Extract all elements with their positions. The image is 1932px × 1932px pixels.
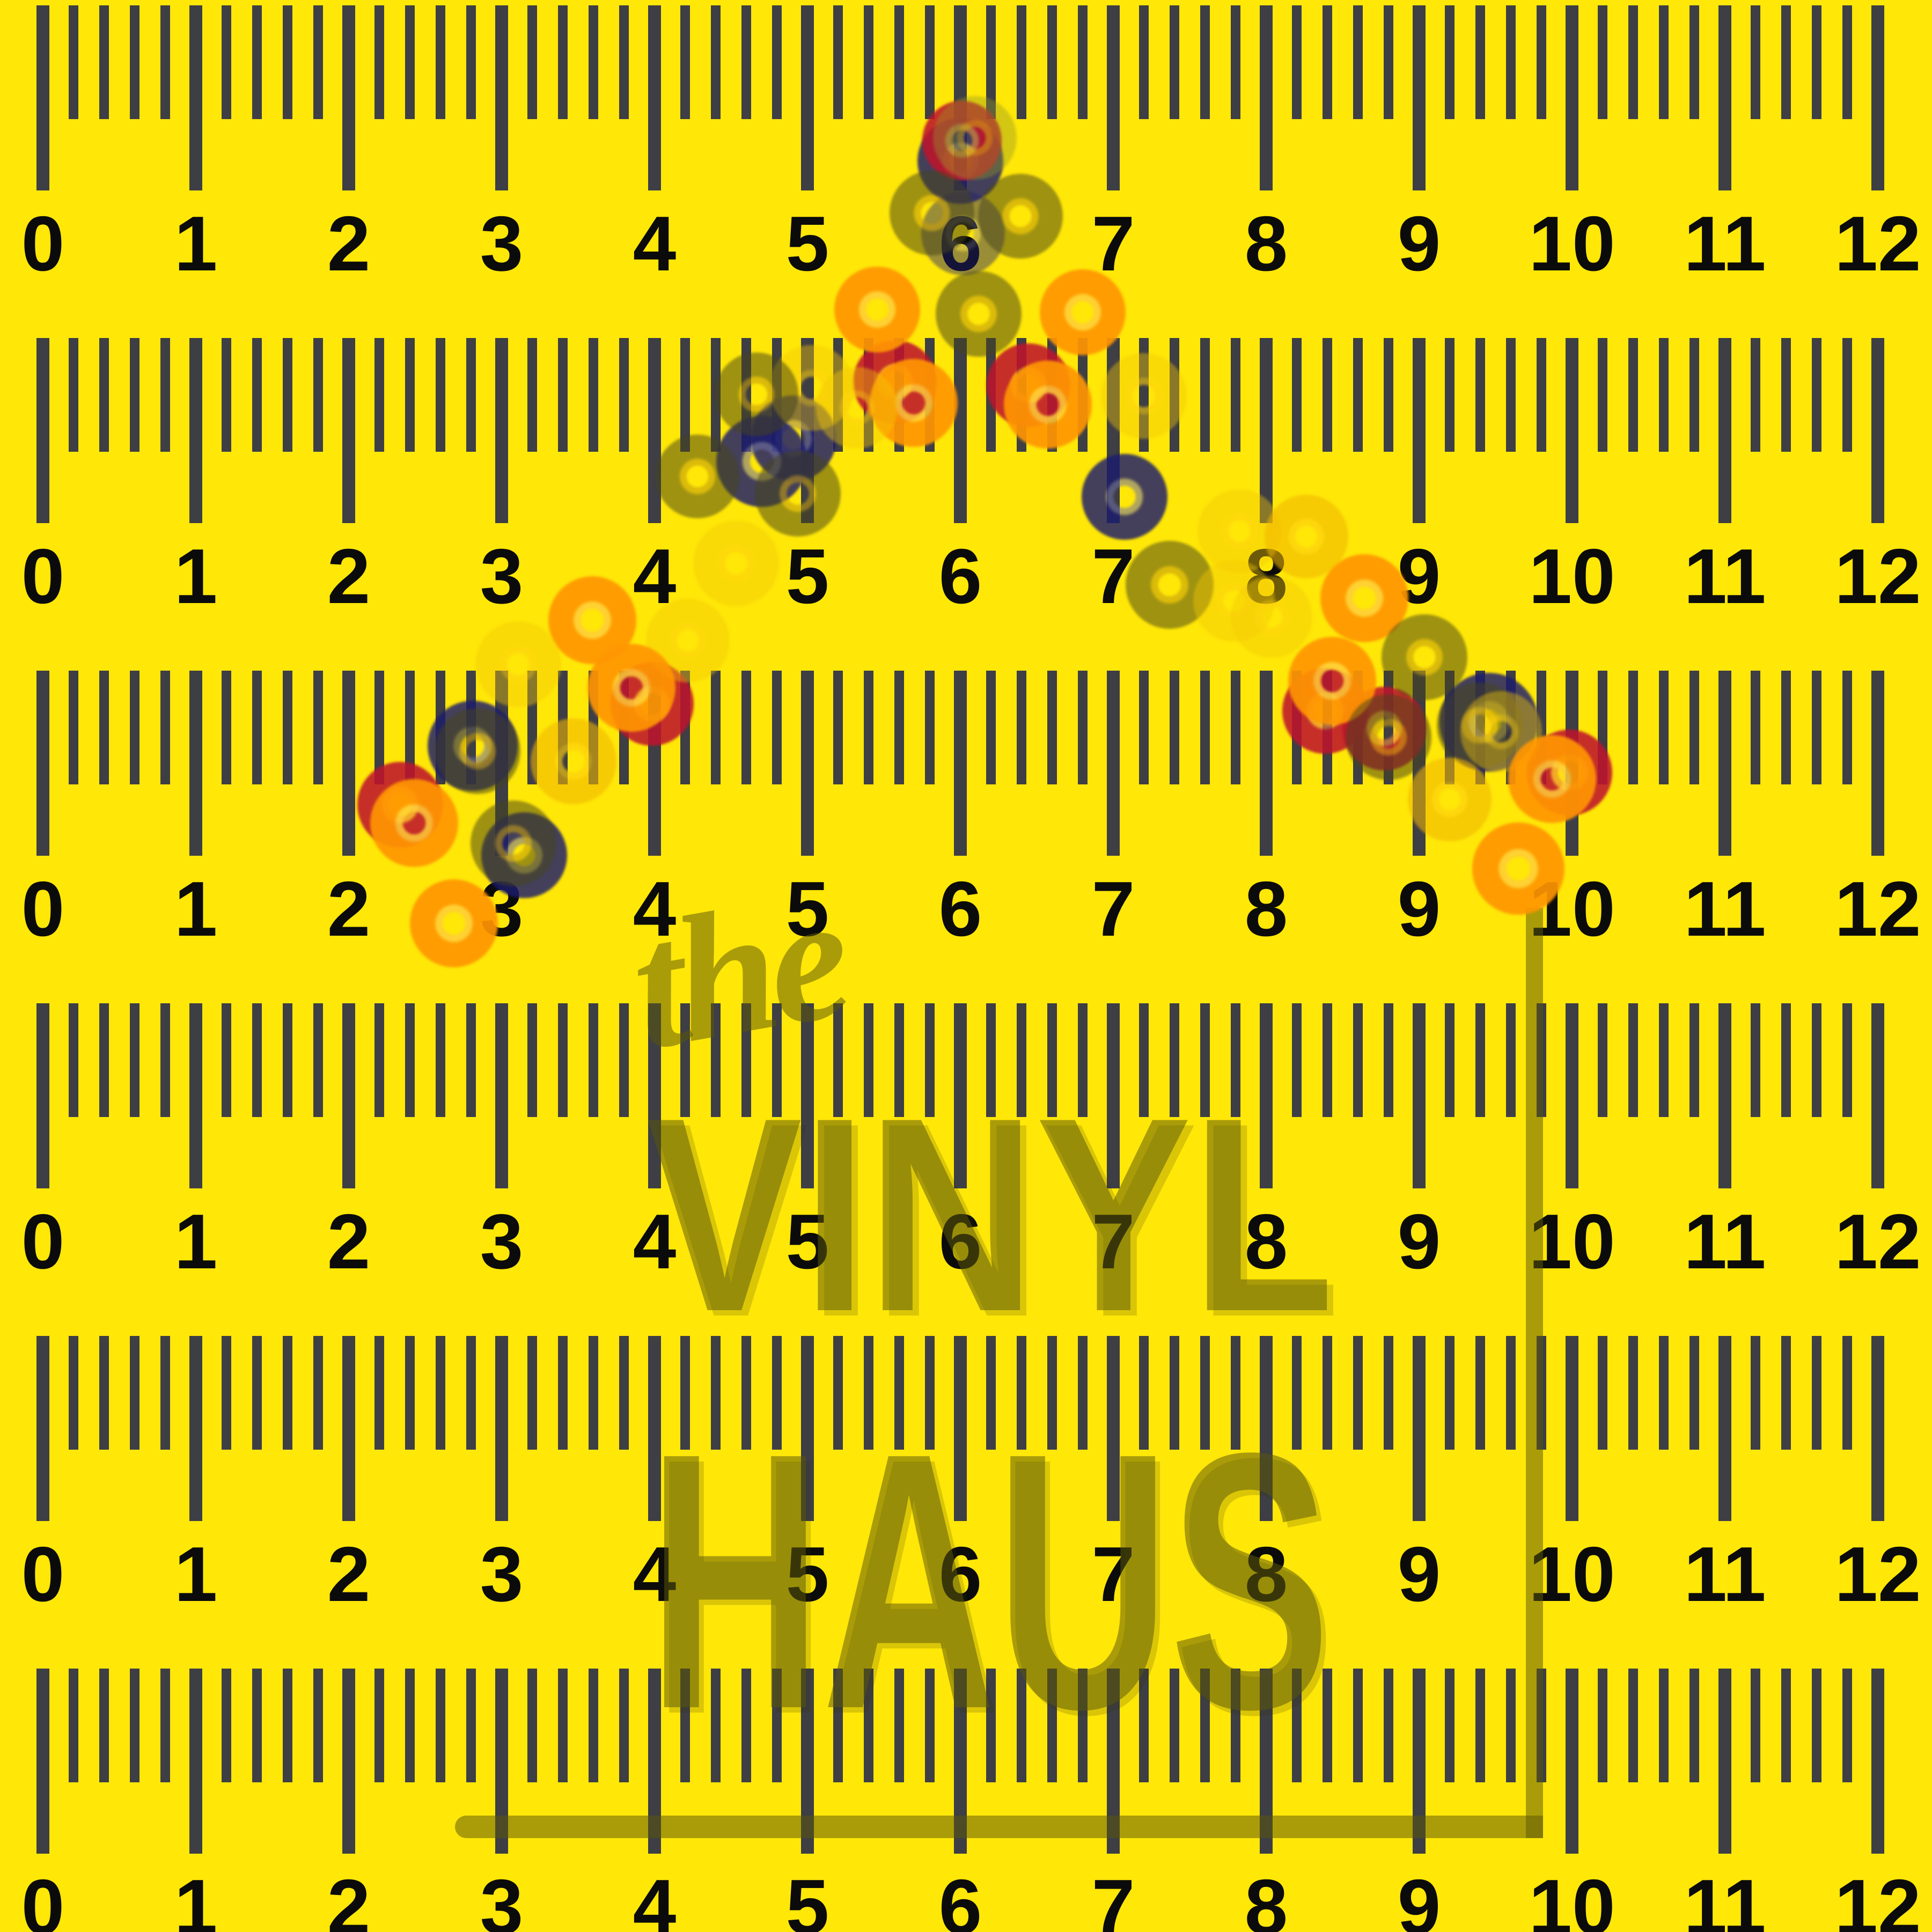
inch-tick bbox=[1566, 338, 1578, 523]
sub-tick bbox=[405, 1669, 415, 1782]
sub-tick bbox=[558, 1669, 568, 1782]
inch-number: 0 bbox=[0, 870, 123, 948]
inch-number: 10 bbox=[1492, 1203, 1652, 1281]
sub-tick bbox=[1384, 1003, 1393, 1117]
sub-tick bbox=[1598, 5, 1607, 119]
sub-tick bbox=[558, 5, 568, 119]
sub-tick bbox=[1812, 1669, 1821, 1782]
sub-tick bbox=[374, 5, 384, 119]
sub-tick bbox=[160, 1669, 170, 1782]
sub-tick bbox=[1751, 338, 1760, 452]
sub-tick bbox=[772, 5, 782, 119]
ruler-row: 0123456789101112 bbox=[0, 671, 1932, 1003]
sub-tick bbox=[1781, 1003, 1791, 1117]
sub-tick bbox=[160, 1003, 170, 1117]
sub-tick bbox=[619, 1003, 629, 1117]
sub-tick bbox=[1353, 338, 1363, 452]
inch-number: 3 bbox=[421, 1868, 582, 1932]
sub-tick bbox=[772, 671, 782, 784]
inch-tick bbox=[1566, 1003, 1578, 1188]
sub-tick bbox=[69, 1003, 78, 1117]
sequin-pale bbox=[693, 520, 779, 606]
sub-tick bbox=[1628, 1003, 1638, 1117]
inch-number: 2 bbox=[268, 205, 429, 283]
inch-tick bbox=[648, 5, 661, 190]
inch-number: 1 bbox=[115, 1203, 276, 1281]
sub-tick bbox=[1751, 671, 1760, 784]
inch-tick bbox=[36, 338, 49, 523]
sub-tick bbox=[252, 1336, 262, 1450]
inch-tick bbox=[1718, 5, 1731, 190]
sub-tick bbox=[374, 1669, 384, 1782]
sub-tick bbox=[313, 338, 323, 452]
inch-tick bbox=[1413, 338, 1426, 523]
inch-number: 6 bbox=[880, 538, 1041, 615]
sub-tick bbox=[864, 5, 873, 119]
inch-number: 1 bbox=[115, 1868, 276, 1932]
inch-tick bbox=[1413, 1003, 1426, 1188]
sub-tick bbox=[1506, 338, 1516, 452]
sub-tick bbox=[1689, 1003, 1699, 1117]
sub-tick bbox=[1842, 338, 1852, 452]
sub-tick bbox=[313, 1003, 323, 1117]
sub-tick bbox=[1598, 1669, 1607, 1782]
sub-tick bbox=[527, 1336, 537, 1450]
inch-number: 11 bbox=[1644, 1536, 1805, 1613]
sub-tick bbox=[1781, 671, 1791, 784]
sequin-orange bbox=[834, 267, 920, 352]
sub-tick bbox=[1751, 5, 1760, 119]
sub-tick bbox=[894, 671, 904, 784]
watermark-word-haus: HAUS bbox=[648, 1399, 1331, 1764]
sub-tick bbox=[1353, 5, 1363, 119]
sub-tick bbox=[680, 338, 690, 452]
sub-tick bbox=[374, 1003, 384, 1117]
sub-tick bbox=[283, 671, 292, 784]
sub-tick bbox=[1598, 338, 1607, 452]
sub-tick bbox=[1751, 1336, 1760, 1450]
sub-tick bbox=[466, 5, 476, 119]
sub-tick bbox=[619, 338, 629, 452]
inch-tick bbox=[954, 671, 967, 856]
sub-tick bbox=[1139, 671, 1149, 784]
sub-tick bbox=[1475, 5, 1485, 119]
sub-tick bbox=[1689, 1336, 1699, 1450]
inch-number: 0 bbox=[0, 538, 123, 615]
sub-tick bbox=[1200, 338, 1210, 452]
sub-tick bbox=[99, 1669, 109, 1782]
sub-tick bbox=[99, 671, 109, 784]
sub-tick bbox=[1628, 338, 1638, 452]
inch-tick bbox=[189, 1669, 202, 1854]
inch-number: 0 bbox=[0, 1868, 123, 1932]
inch-tick bbox=[1871, 671, 1884, 856]
sub-tick bbox=[374, 1336, 384, 1450]
sub-tick bbox=[589, 5, 598, 119]
inch-tick bbox=[1107, 671, 1120, 856]
inch-number: 0 bbox=[0, 1536, 123, 1613]
inch-number: 12 bbox=[1797, 538, 1932, 615]
inch-number: 9 bbox=[1339, 1536, 1500, 1613]
sub-tick bbox=[1751, 1669, 1760, 1782]
inch-tick bbox=[495, 1336, 508, 1521]
sequin-olive bbox=[1382, 614, 1467, 700]
sub-tick bbox=[1598, 1003, 1607, 1117]
sub-tick bbox=[1812, 1003, 1821, 1117]
sub-tick bbox=[1384, 5, 1393, 119]
sub-tick bbox=[1047, 671, 1057, 784]
inch-tick bbox=[189, 671, 202, 856]
sub-tick bbox=[283, 1336, 292, 1450]
sub-tick bbox=[313, 5, 323, 119]
sub-tick bbox=[69, 5, 78, 119]
sub-tick bbox=[436, 1669, 445, 1782]
sub-tick bbox=[466, 1669, 476, 1782]
sub-tick bbox=[405, 5, 415, 119]
sub-tick bbox=[436, 1003, 445, 1117]
sub-tick bbox=[313, 1336, 323, 1450]
inch-tick bbox=[342, 1669, 355, 1854]
inch-tick bbox=[189, 338, 202, 523]
sub-tick bbox=[1384, 1336, 1393, 1450]
inch-tick bbox=[1260, 5, 1273, 190]
inch-number: 10 bbox=[1492, 1536, 1652, 1613]
inch-tick bbox=[342, 671, 355, 856]
sub-tick bbox=[1323, 338, 1332, 452]
inch-number: 4 bbox=[574, 205, 735, 283]
inch-number: 2 bbox=[268, 1536, 429, 1613]
sequin-orange bbox=[1472, 822, 1564, 915]
sequin-olive bbox=[936, 271, 1022, 357]
sub-tick bbox=[130, 1003, 139, 1117]
inch-tick bbox=[1718, 1669, 1731, 1854]
inch-tick bbox=[342, 338, 355, 523]
sub-tick bbox=[1292, 5, 1302, 119]
sub-tick bbox=[1078, 5, 1088, 119]
sub-tick bbox=[1139, 5, 1149, 119]
inch-tick bbox=[1871, 1336, 1884, 1521]
sequin-gold bbox=[531, 718, 616, 804]
inch-tick bbox=[801, 5, 814, 190]
sub-tick bbox=[99, 1336, 109, 1450]
inch-number: 1 bbox=[115, 870, 276, 948]
sub-tick bbox=[222, 1669, 231, 1782]
sub-tick bbox=[1231, 671, 1240, 784]
sequin-pale bbox=[1231, 576, 1312, 658]
sub-tick bbox=[527, 1669, 537, 1782]
sub-tick bbox=[589, 1003, 598, 1117]
sub-tick bbox=[69, 1669, 78, 1782]
sub-tick bbox=[1781, 1669, 1791, 1782]
sub-tick bbox=[1506, 1669, 1516, 1782]
inch-number: 7 bbox=[1033, 870, 1194, 948]
inch-number: 6 bbox=[880, 870, 1041, 948]
inch-number: 2 bbox=[268, 1868, 429, 1932]
sub-tick bbox=[160, 671, 170, 784]
inch-number: 4 bbox=[574, 1868, 735, 1932]
sub-tick bbox=[741, 671, 751, 784]
inch-tick bbox=[36, 1003, 49, 1188]
sub-tick bbox=[1781, 1336, 1791, 1450]
sub-tick bbox=[69, 1336, 78, 1450]
sub-tick bbox=[1200, 671, 1210, 784]
sub-tick bbox=[1353, 1003, 1363, 1117]
sequin-paleolive bbox=[933, 96, 1017, 180]
sequin-orange bbox=[1508, 735, 1596, 823]
inch-tick bbox=[1871, 1669, 1884, 1854]
inch-tick bbox=[189, 1003, 202, 1188]
sub-tick bbox=[99, 5, 109, 119]
sub-tick bbox=[1506, 5, 1516, 119]
inch-tick bbox=[1566, 1669, 1578, 1854]
sub-tick bbox=[1598, 1336, 1607, 1450]
sub-tick bbox=[1475, 1336, 1485, 1450]
sub-tick bbox=[1628, 1669, 1638, 1782]
inch-tick bbox=[189, 5, 202, 190]
sub-tick bbox=[252, 338, 262, 452]
sub-tick bbox=[252, 5, 262, 119]
sub-tick bbox=[405, 338, 415, 452]
inch-number: 2 bbox=[268, 538, 429, 615]
sub-tick bbox=[833, 671, 843, 784]
inch-tick bbox=[1871, 338, 1884, 523]
sub-tick bbox=[222, 1003, 231, 1117]
sub-tick bbox=[1689, 5, 1699, 119]
inch-tick bbox=[1718, 1336, 1731, 1521]
sequin-olive bbox=[471, 800, 556, 886]
sub-tick bbox=[1017, 671, 1026, 784]
sub-tick bbox=[1842, 1336, 1852, 1450]
inch-number: 3 bbox=[421, 1203, 582, 1281]
inch-number: 12 bbox=[1797, 1536, 1932, 1613]
sequin-orange bbox=[370, 779, 458, 867]
inch-tick bbox=[495, 5, 508, 190]
sub-tick bbox=[1659, 338, 1669, 452]
inch-number: 10 bbox=[1492, 205, 1652, 283]
sub-tick bbox=[1689, 671, 1699, 784]
sub-tick bbox=[252, 671, 262, 784]
inch-number: 2 bbox=[268, 870, 429, 948]
inch-number: 12 bbox=[1797, 870, 1932, 948]
inch-tick bbox=[954, 338, 967, 523]
sub-tick bbox=[619, 1336, 629, 1450]
sub-tick bbox=[1231, 5, 1240, 119]
inch-tick bbox=[36, 1669, 49, 1854]
sub-tick bbox=[1353, 1669, 1363, 1782]
sub-tick bbox=[1170, 671, 1179, 784]
sub-tick bbox=[222, 1336, 231, 1450]
sub-tick bbox=[1812, 1336, 1821, 1450]
sub-tick bbox=[222, 338, 231, 452]
inch-number: 5 bbox=[727, 1868, 888, 1932]
sub-tick bbox=[1353, 1336, 1363, 1450]
sub-tick bbox=[1781, 338, 1791, 452]
inch-number: 12 bbox=[1797, 1868, 1932, 1932]
inch-tick bbox=[1718, 1003, 1731, 1188]
sub-tick bbox=[1445, 338, 1454, 452]
watermark-word-vinyl: VINYL bbox=[647, 1077, 1334, 1353]
sub-tick bbox=[405, 1003, 415, 1117]
sub-tick bbox=[99, 338, 109, 452]
sub-tick bbox=[833, 5, 843, 119]
sequin-olive bbox=[715, 352, 798, 436]
inch-number: 3 bbox=[421, 205, 582, 283]
inch-number: 9 bbox=[1339, 205, 1500, 283]
inch-number: 9 bbox=[1339, 1203, 1500, 1281]
sub-tick bbox=[558, 1003, 568, 1117]
inch-tick bbox=[342, 1003, 355, 1188]
sub-tick bbox=[558, 1336, 568, 1450]
tape-measure-pattern: 0123456789101112012345678910111201234567… bbox=[0, 0, 1932, 1932]
sub-tick bbox=[680, 5, 690, 119]
sub-tick bbox=[1537, 5, 1546, 119]
sub-tick bbox=[69, 338, 78, 452]
inch-tick bbox=[1413, 5, 1426, 190]
sub-tick bbox=[1170, 5, 1179, 119]
sub-tick bbox=[589, 1669, 598, 1782]
inch-tick bbox=[1718, 338, 1731, 523]
sub-tick bbox=[1842, 671, 1852, 784]
inch-tick bbox=[495, 338, 508, 523]
sequin-olive bbox=[978, 174, 1063, 259]
sub-tick bbox=[466, 1336, 476, 1450]
sub-tick bbox=[313, 671, 323, 784]
inch-tick bbox=[648, 338, 661, 523]
sub-tick bbox=[466, 1003, 476, 1117]
sub-tick bbox=[1445, 5, 1454, 119]
sub-tick bbox=[1812, 338, 1821, 452]
inch-number: 0 bbox=[0, 205, 123, 283]
inch-tick bbox=[1871, 5, 1884, 190]
inch-number: 6 bbox=[880, 1868, 1041, 1932]
sub-tick bbox=[711, 671, 721, 784]
inch-tick bbox=[1871, 1003, 1884, 1188]
sequin-orange bbox=[1004, 361, 1092, 449]
sub-tick bbox=[130, 338, 139, 452]
sub-tick bbox=[1384, 1669, 1393, 1782]
sub-tick bbox=[589, 338, 598, 452]
sub-tick bbox=[1659, 671, 1669, 784]
sub-tick bbox=[130, 5, 139, 119]
sub-tick bbox=[619, 1669, 629, 1782]
sub-tick bbox=[222, 5, 231, 119]
inch-tick bbox=[189, 1336, 202, 1521]
sub-tick bbox=[1475, 338, 1485, 452]
inch-number: 12 bbox=[1797, 1203, 1932, 1281]
sub-tick bbox=[1078, 671, 1088, 784]
inch-tick bbox=[36, 671, 49, 856]
inch-tick bbox=[342, 1336, 355, 1521]
sub-tick bbox=[894, 5, 904, 119]
inch-tick bbox=[1566, 1336, 1578, 1521]
sub-tick bbox=[283, 338, 292, 452]
sequin-gold bbox=[1408, 758, 1492, 841]
inch-tick bbox=[36, 1336, 49, 1521]
sequin-pale bbox=[475, 621, 561, 707]
sequin-pale bbox=[816, 367, 898, 449]
sub-tick bbox=[1659, 1669, 1669, 1782]
inch-tick bbox=[1107, 5, 1120, 190]
sub-tick bbox=[283, 1003, 292, 1117]
ruler-row: 0123456789101112 bbox=[0, 338, 1932, 671]
sub-tick bbox=[374, 338, 384, 452]
sub-tick bbox=[283, 5, 292, 119]
sub-tick bbox=[1781, 5, 1791, 119]
inch-number: 10 bbox=[1492, 538, 1652, 615]
sub-tick bbox=[313, 1669, 323, 1782]
inch-number: 8 bbox=[1186, 205, 1347, 283]
inch-number: 8 bbox=[1186, 870, 1347, 948]
sub-tick bbox=[527, 5, 537, 119]
sub-tick bbox=[99, 1003, 109, 1117]
sub-tick bbox=[1689, 1669, 1699, 1782]
sub-tick bbox=[130, 671, 139, 784]
sub-tick bbox=[436, 338, 445, 452]
inch-tick bbox=[1260, 671, 1273, 856]
sequin-olive bbox=[890, 171, 974, 255]
inch-tick bbox=[36, 5, 49, 190]
sequin-olive bbox=[755, 451, 841, 537]
sub-tick bbox=[1842, 1669, 1852, 1782]
inch-tick bbox=[1413, 1336, 1426, 1521]
sub-tick bbox=[1537, 338, 1546, 452]
inch-tick bbox=[342, 5, 355, 190]
sub-tick bbox=[1628, 5, 1638, 119]
sub-tick bbox=[1628, 671, 1638, 784]
sub-tick bbox=[160, 5, 170, 119]
sub-tick bbox=[1017, 5, 1026, 119]
inch-number: 11 bbox=[1644, 1868, 1805, 1932]
inch-number: 11 bbox=[1644, 870, 1805, 948]
sub-tick bbox=[1842, 5, 1852, 119]
sub-tick bbox=[1323, 5, 1332, 119]
sub-tick bbox=[1659, 1003, 1669, 1117]
sub-tick bbox=[222, 671, 231, 784]
inch-tick bbox=[495, 1003, 508, 1188]
inch-tick bbox=[1566, 5, 1578, 190]
inch-number: 1 bbox=[115, 1536, 276, 1613]
sub-tick bbox=[1047, 5, 1057, 119]
sub-tick bbox=[160, 1336, 170, 1450]
sub-tick bbox=[436, 1336, 445, 1450]
sub-tick bbox=[589, 1336, 598, 1450]
sub-tick bbox=[405, 1336, 415, 1450]
watermark-script-the: the bbox=[617, 852, 858, 1092]
sub-tick bbox=[252, 1669, 262, 1782]
sub-tick bbox=[1475, 1669, 1485, 1782]
sub-tick bbox=[558, 338, 568, 452]
sequin-olive bbox=[656, 435, 739, 518]
sequin-pale bbox=[1101, 353, 1187, 439]
inch-number: 2 bbox=[268, 1203, 429, 1281]
sub-tick bbox=[527, 338, 537, 452]
sub-tick bbox=[1628, 1336, 1638, 1450]
inch-number: 11 bbox=[1644, 1203, 1805, 1281]
sub-tick bbox=[1445, 1669, 1454, 1782]
inch-number: 0 bbox=[0, 1203, 123, 1281]
sub-tick bbox=[1231, 338, 1240, 452]
sub-tick bbox=[436, 5, 445, 119]
sub-tick bbox=[1292, 338, 1302, 452]
sequin-orange bbox=[410, 879, 498, 967]
sub-tick bbox=[466, 338, 476, 452]
inch-tick bbox=[801, 671, 814, 856]
sub-tick bbox=[925, 671, 935, 784]
inch-number: 3 bbox=[421, 1536, 582, 1613]
inch-number: 1 bbox=[115, 538, 276, 615]
inch-tick bbox=[1718, 671, 1731, 856]
sub-tick bbox=[1506, 1003, 1516, 1117]
